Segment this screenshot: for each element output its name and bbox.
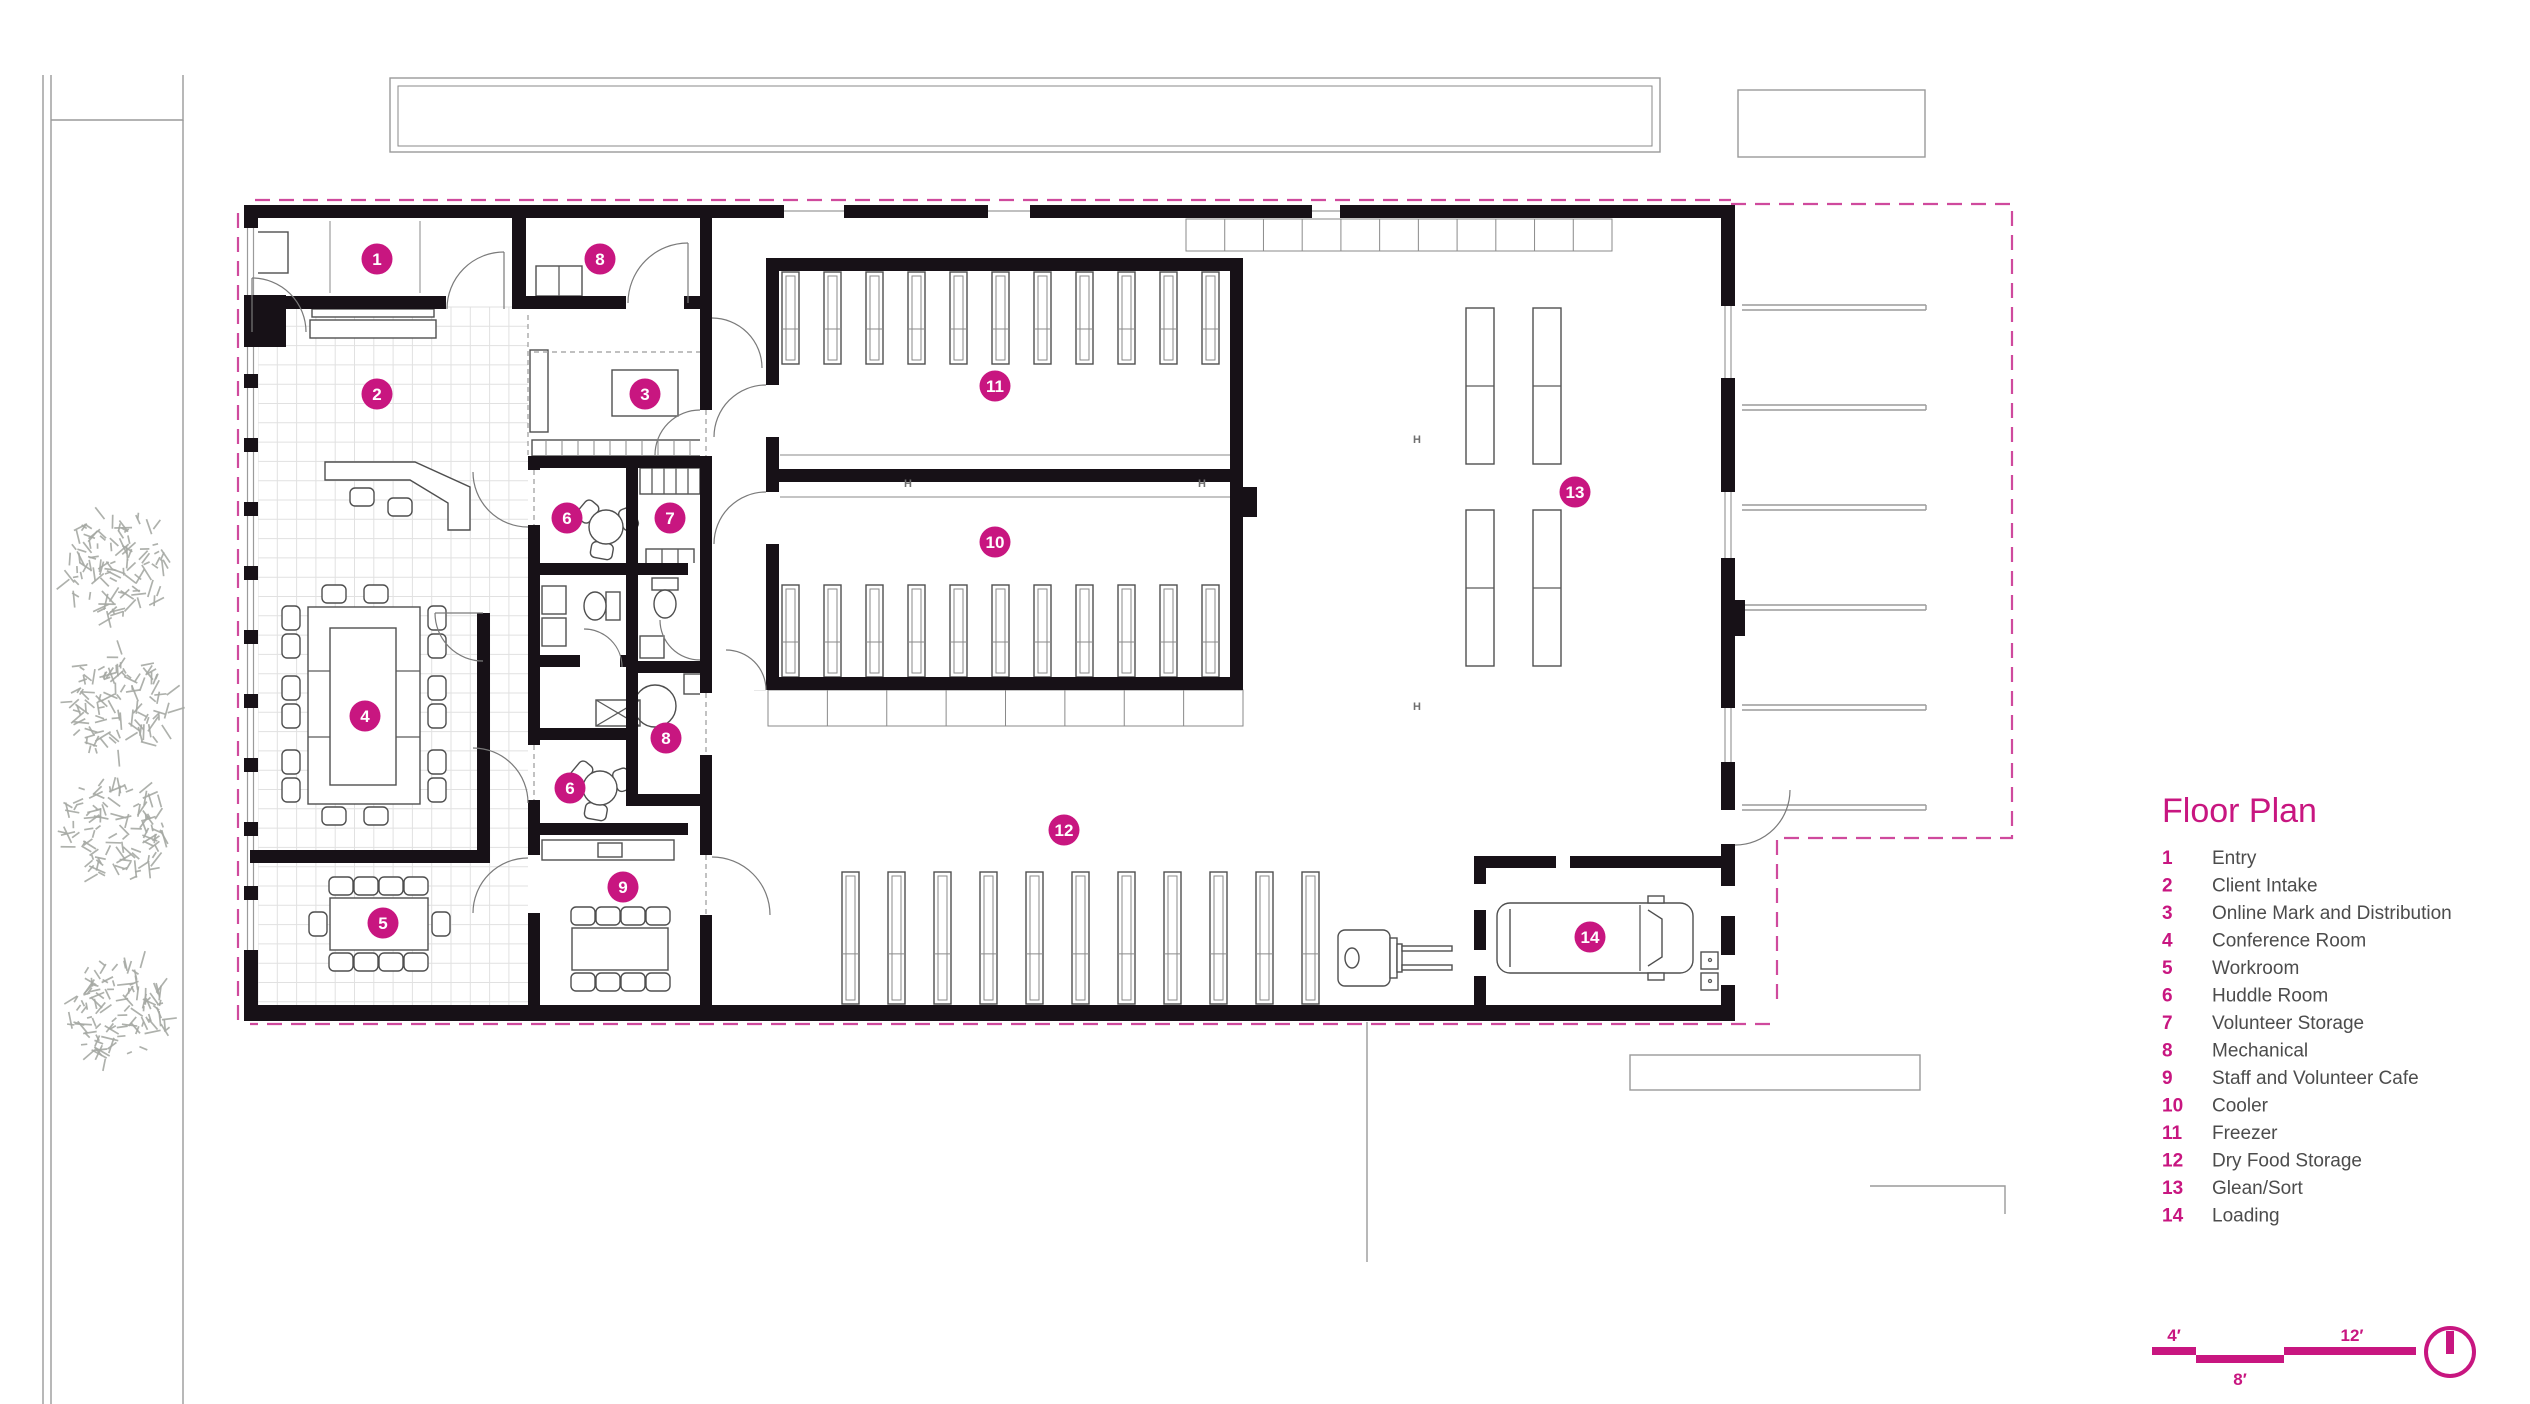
freezer-rack <box>1034 272 1051 364</box>
tree <box>61 640 185 766</box>
intake-counter <box>310 320 436 338</box>
window-opening <box>1721 306 1735 378</box>
door-swing <box>660 620 700 660</box>
legend-item-number: 14 <box>2162 1206 2184 1227</box>
wall-pilaster <box>1243 487 1257 517</box>
property-line <box>51 75 183 120</box>
svg-text:6: 6 <box>562 509 571 528</box>
column-marker: H <box>1413 701 1421 713</box>
cooler-rack <box>1160 585 1177 677</box>
legend-item: 5Workroom <box>2162 958 2299 979</box>
door-swing <box>628 243 688 303</box>
room-marker-8: 8 <box>585 244 616 275</box>
door-swing <box>726 650 766 690</box>
cooler-rack <box>824 585 841 677</box>
tree <box>58 777 168 882</box>
chair <box>322 585 346 603</box>
legend-item: 2Client Intake <box>2162 876 2318 897</box>
site-structure-outline <box>1630 1055 1920 1090</box>
window-opening <box>1721 708 1735 762</box>
exterior-wall-bottom <box>250 1005 1735 1021</box>
chair <box>282 778 300 802</box>
sink <box>542 618 566 646</box>
forklift-mast <box>1390 938 1397 978</box>
legend-item: 4Conference Room <box>2162 931 2366 952</box>
window-opening <box>244 708 258 758</box>
entry-wall <box>250 296 446 309</box>
legend-item-number: 6 <box>2162 986 2173 1007</box>
project-boundary-dashed <box>238 200 2012 1024</box>
dry-storage-rack <box>1072 872 1089 1004</box>
dry-storage-rack <box>1210 872 1227 1004</box>
chair <box>404 953 428 971</box>
door-swing <box>714 385 766 437</box>
legend-item: 7Volunteer Storage <box>2162 1013 2364 1034</box>
svg-text:14: 14 <box>1581 928 1600 947</box>
partition-wall <box>626 794 712 806</box>
cold-box-wall-bottom <box>766 677 1243 690</box>
window-opening <box>244 516 258 566</box>
cooler-rack <box>1202 585 1219 677</box>
room-marker-10: 10 <box>980 527 1011 558</box>
svg-text:11: 11 <box>986 377 1004 396</box>
room-marker-5: 5 <box>368 908 399 939</box>
door-opening <box>580 655 620 667</box>
adjacent-structure-outline <box>1738 90 1925 157</box>
chair <box>571 973 595 991</box>
svg-text:5: 5 <box>378 914 387 933</box>
freezer-rack <box>950 272 967 364</box>
legend-item-label: Staff and Volunteer Cafe <box>2212 1068 2419 1089</box>
chair <box>571 907 595 925</box>
cooler-rack <box>866 585 883 677</box>
legend-item-label: Online Mark and Distribution <box>2212 903 2452 924</box>
conference-wall <box>477 613 490 862</box>
pallet-row <box>1186 219 1612 251</box>
partition-wall <box>528 456 712 468</box>
legend-item-label: Freezer <box>2212 1123 2278 1144</box>
chair <box>379 953 403 971</box>
column-marker: H <box>1198 478 1206 490</box>
chair <box>282 606 300 630</box>
legend-item-number: 5 <box>2162 958 2173 979</box>
legend-item-label: Dry Food Storage <box>2212 1151 2362 1172</box>
door-swing <box>712 318 762 368</box>
window-opening <box>244 900 258 950</box>
dry-storage-rack <box>888 872 905 1004</box>
cooler-rack <box>908 585 925 677</box>
scale-segment-8ft <box>2196 1355 2284 1363</box>
chair <box>388 498 412 516</box>
window-opening <box>244 388 258 438</box>
chair <box>646 907 670 925</box>
legend-item: 13Glean/Sort <box>2162 1178 2304 1199</box>
svg-text:7: 7 <box>665 509 674 528</box>
chair <box>428 750 446 774</box>
adjacent-building-outline <box>390 78 1660 152</box>
legend-item-label: Entry <box>2212 848 2257 869</box>
scale-label-4ft: 4′ <box>2167 1326 2181 1345</box>
legend-item-number: 8 <box>2162 1041 2173 1062</box>
legend-item-number: 9 <box>2162 1068 2173 1089</box>
window-opening <box>244 772 258 822</box>
cooler-rack <box>1034 585 1051 677</box>
freezer-rack <box>782 272 799 364</box>
legend-item-number: 12 <box>2162 1151 2183 1172</box>
chair <box>329 953 353 971</box>
freezer-rack <box>866 272 883 364</box>
dock-door-opening <box>1721 886 1735 916</box>
toilet-bowl <box>654 590 676 618</box>
site-line <box>1870 1186 2005 1214</box>
svg-text:8: 8 <box>661 729 670 748</box>
door-swing <box>714 492 766 544</box>
legend-item: 10Cooler <box>2162 1096 2269 1117</box>
toilet-bowl <box>584 592 606 620</box>
dry-storage-rack <box>1302 872 1319 1004</box>
freezer-rack <box>1076 272 1093 364</box>
chair <box>350 488 374 506</box>
cooler-door-opening <box>766 492 779 544</box>
legend-item-label: Glean/Sort <box>2212 1178 2304 1199</box>
freezer-rack <box>1118 272 1135 364</box>
legend-item-number: 1 <box>2162 848 2173 869</box>
legend-item-label: Mechanical <box>2212 1041 2308 1062</box>
dock-door-opening <box>1474 884 1486 910</box>
scale-label-8ft: 8′ <box>2233 1370 2247 1389</box>
legend-item-number: 13 <box>2162 1178 2183 1199</box>
dock-door-opening <box>1474 950 1486 976</box>
round-table <box>583 771 617 805</box>
svg-text:1: 1 <box>372 250 381 269</box>
door-opening <box>528 855 540 913</box>
door-swing <box>712 857 770 915</box>
chair <box>621 973 645 991</box>
dock-door-opening <box>1721 955 1735 985</box>
room-marker-13: 13 <box>1560 477 1591 508</box>
electrical-panel <box>1701 973 1718 990</box>
door-leaf <box>1721 790 1735 810</box>
freezer-rack <box>992 272 1009 364</box>
partition-wall <box>626 456 638 806</box>
toilet-tank <box>652 578 678 590</box>
legend-item: 11Freezer <box>2162 1123 2278 1144</box>
svg-text:4: 4 <box>360 707 370 726</box>
room-marker-14: 14 <box>1575 922 1606 953</box>
dry-storage-rack <box>1256 872 1273 1004</box>
legend-item-label: Loading <box>2212 1206 2280 1227</box>
door-swing <box>447 252 504 309</box>
dry-storage-rack <box>1118 872 1135 1004</box>
legend-item: 1Entry <box>2162 848 2257 869</box>
chair <box>282 634 300 658</box>
cooler-rack <box>992 585 1009 677</box>
chair <box>596 907 620 925</box>
legend-item: 8Mechanical <box>2162 1041 2308 1062</box>
chair <box>282 676 300 700</box>
shelf-unit <box>532 440 708 456</box>
forklift-fork <box>1402 946 1452 951</box>
legend: Floor Plan 1Entry2Client Intake3Online M… <box>2162 792 2452 1227</box>
legend-item-label: Volunteer Storage <box>2212 1013 2364 1034</box>
column-marker: H <box>904 478 912 490</box>
dry-storage-rack <box>1164 872 1181 1004</box>
locker-row <box>640 468 700 494</box>
room-marker-1: 1 <box>362 244 393 275</box>
chair <box>322 807 346 825</box>
svg-text:10: 10 <box>986 533 1005 552</box>
door-swing <box>1735 790 1790 845</box>
forklift-fork <box>1402 965 1452 970</box>
chair <box>432 912 450 936</box>
tree <box>64 951 176 1071</box>
cooler-rack <box>782 585 799 677</box>
freezer-door-opening <box>766 385 779 437</box>
legend-item: 3Online Mark and Distribution <box>2162 903 2452 924</box>
cold-box-divider <box>766 469 1243 482</box>
legend-item-label: Workroom <box>2212 958 2299 979</box>
room-marker-9: 9 <box>608 872 639 903</box>
chair <box>354 953 378 971</box>
chair <box>282 704 300 728</box>
chair <box>646 973 670 991</box>
sink <box>640 636 664 658</box>
dry-storage-rack <box>842 872 859 1004</box>
svg-text:13: 13 <box>1566 483 1585 502</box>
sorting-racks <box>1466 308 1561 666</box>
room-marker-6: 6 <box>555 773 586 804</box>
dry-storage-rack <box>980 872 997 1004</box>
scale-label-12ft: 12′ <box>2341 1326 2364 1345</box>
partition-wall <box>626 661 712 673</box>
round-table <box>589 510 623 544</box>
svg-text:2: 2 <box>372 385 381 404</box>
legend-items: 1Entry2Client Intake3Online Mark and Dis… <box>2162 848 2452 1227</box>
chair <box>379 877 403 895</box>
legend-item-number: 4 <box>2162 931 2173 952</box>
toilet-tank <box>606 592 620 620</box>
electrical-panel <box>1701 952 1718 969</box>
trees <box>57 507 185 1071</box>
chair <box>329 877 353 895</box>
floor-plan-drawing: HHHH 182367111013486129514 Floor Plan 1E… <box>0 0 2530 1404</box>
cooler-rack <box>1118 585 1135 677</box>
legend-item-label: Client Intake <box>2212 876 2318 897</box>
tree <box>57 507 170 627</box>
room-marker-11: 11 <box>980 371 1011 402</box>
chair <box>354 877 378 895</box>
partition-wall <box>528 563 712 575</box>
conference-wall <box>250 850 490 863</box>
cold-box-wall-top <box>766 258 1243 271</box>
chair <box>428 676 446 700</box>
freezer-rack <box>1160 272 1177 364</box>
entry-wall <box>512 205 526 309</box>
entry-counter <box>312 309 434 317</box>
dry-storage-rack <box>934 872 951 1004</box>
legend-item: 14Loading <box>2162 1206 2280 1227</box>
svg-text:9: 9 <box>618 878 627 897</box>
partition-wall <box>528 823 712 835</box>
freezer-rack <box>1202 272 1219 364</box>
loading-wall-notch <box>1556 856 1570 868</box>
truck-mirror <box>1648 973 1664 980</box>
column-marker: H <box>1413 434 1421 446</box>
svg-text:8: 8 <box>595 250 604 269</box>
storage-cabinet <box>530 350 548 432</box>
chair <box>428 704 446 728</box>
room-marker-4: 4 <box>350 701 381 732</box>
window-opening <box>244 452 258 502</box>
forklift-body <box>1338 930 1390 986</box>
loading-wall-left <box>1474 856 1486 1009</box>
chair <box>282 750 300 774</box>
scale-segment-4ft <box>2152 1347 2196 1355</box>
scale-bar: 4′ 8′ 12′ <box>2152 1326 2474 1389</box>
window-opening <box>244 644 258 694</box>
mechanical-wall <box>512 296 626 309</box>
freezer-rack <box>908 272 925 364</box>
partition-wall <box>528 728 638 740</box>
legend-item-label: Huddle Room <box>2212 986 2328 1007</box>
legend-item-number: 7 <box>2162 1013 2173 1034</box>
chair <box>364 807 388 825</box>
window-opening <box>244 228 258 302</box>
svg-text:3: 3 <box>640 385 649 404</box>
chair <box>428 778 446 802</box>
cafe-sink <box>598 843 622 857</box>
cooler-rack <box>950 585 967 677</box>
forklift <box>1338 930 1452 986</box>
svg-text:6: 6 <box>565 779 574 798</box>
cooler-rack <box>1076 585 1093 677</box>
chair <box>621 907 645 925</box>
parking-stalls <box>1742 305 1926 810</box>
sink <box>542 586 566 614</box>
freezer-rack <box>824 272 841 364</box>
legend-item: 12Dry Food Storage <box>2162 1151 2362 1172</box>
chair <box>309 912 327 936</box>
room-marker-3: 3 <box>630 379 661 410</box>
loading-wall-top <box>1474 856 1721 868</box>
legend-item-number: 10 <box>2162 1096 2183 1117</box>
scale-segment-12ft <box>2284 1347 2416 1355</box>
room-marker-6: 6 <box>552 503 583 534</box>
window-opening <box>244 580 258 630</box>
window-opening <box>1721 492 1735 558</box>
forklift-mast <box>1397 944 1402 972</box>
svg-text:12: 12 <box>1055 821 1074 840</box>
legend-item-number: 11 <box>2162 1123 2183 1144</box>
room-marker-12: 12 <box>1049 815 1080 846</box>
floor-plan-page: HHHH 182367111013486129514 Floor Plan 1E… <box>0 0 2530 1404</box>
legend-item: 6Huddle Room <box>2162 986 2328 1007</box>
legend-item-number: 2 <box>2162 876 2173 897</box>
chair <box>596 973 620 991</box>
north-arrow-icon <box>2426 1328 2474 1376</box>
truck-mirror <box>1648 896 1664 903</box>
legend-title: Floor Plan <box>2162 792 2317 830</box>
chair <box>364 585 388 603</box>
legend-item-label: Cooler <box>2212 1096 2269 1117</box>
chair <box>428 634 446 658</box>
boundary-yard <box>1731 204 2012 1008</box>
cafe-table <box>572 928 668 970</box>
legend-item-label: Conference Room <box>2212 931 2366 952</box>
legend-item-number: 3 <box>2162 903 2173 924</box>
chair <box>404 877 428 895</box>
dry-storage-rack <box>1026 872 1043 1004</box>
wall-pilaster <box>1735 600 1745 636</box>
adjacent-building-outline-inner <box>398 86 1652 146</box>
room-marker-2: 2 <box>362 379 393 410</box>
room-marker-7: 7 <box>655 503 686 534</box>
door-swing <box>655 410 700 455</box>
north-pointer <box>2446 1331 2454 1354</box>
legend-item: 9Staff and Volunteer Cafe <box>2162 1068 2419 1089</box>
room-marker-8: 8 <box>651 723 682 754</box>
